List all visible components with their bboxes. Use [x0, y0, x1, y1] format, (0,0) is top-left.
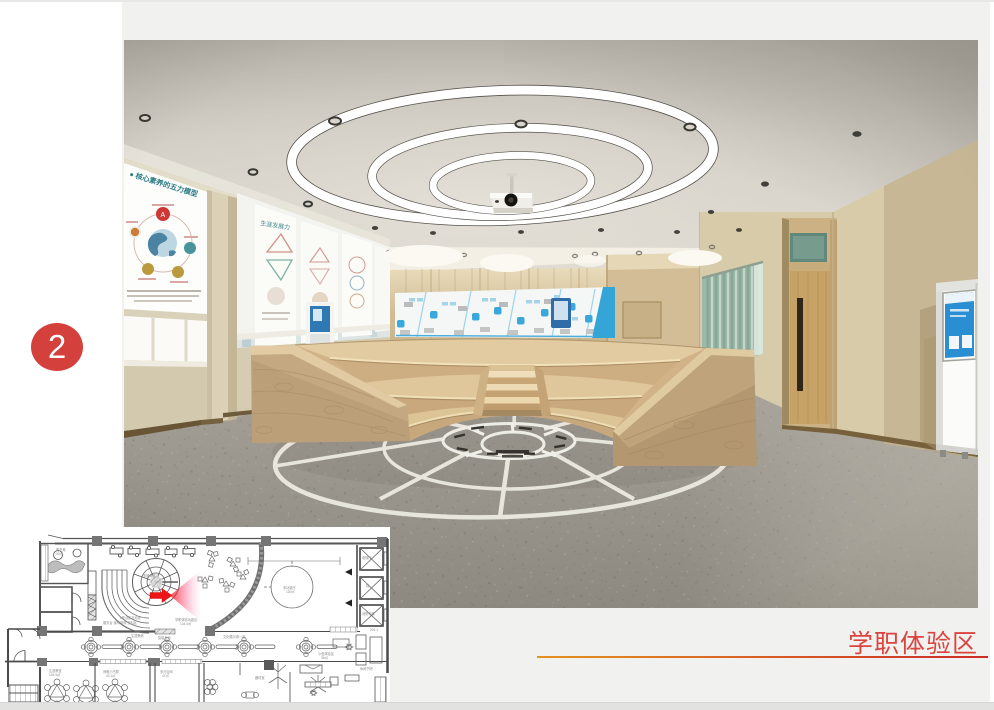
svg-text:消防电梯: 消防电梯	[362, 611, 376, 616]
svg-text:器材室: 器材室	[255, 675, 265, 680]
svg-text:134.4㎡: 134.4㎡	[180, 621, 192, 626]
svg-text:47㎡: 47㎡	[162, 673, 170, 678]
svg-text:智能互动: 智能互动	[158, 635, 171, 640]
svg-text:L型台阶互动区: L型台阶互动区	[120, 615, 142, 620]
svg-text:203.1: 203.1	[370, 628, 378, 632]
svg-text:36㎡: 36㎡	[321, 655, 329, 660]
svg-text:文化展示墙一览: 文化展示墙一览	[223, 634, 245, 639]
svg-text:30㎡: 30㎡	[56, 551, 64, 556]
svg-text:40.1㎡: 40.1㎡	[106, 673, 116, 678]
svg-text:服务台·接待咨询·资料区: 服务台·接待咨询·资料区	[103, 620, 138, 625]
svg-text:休闲书吧: 休闲书吧	[360, 666, 374, 671]
svg-text:多媒体学习: 多媒体学习	[143, 573, 159, 578]
svg-text:120㎡: 120㎡	[286, 589, 295, 594]
svg-text:电梯厅: 电梯厅	[362, 555, 372, 560]
svg-text:生涯教练: 生涯教练	[131, 633, 145, 638]
svg-text:104.5㎡: 104.5㎡	[49, 672, 61, 677]
